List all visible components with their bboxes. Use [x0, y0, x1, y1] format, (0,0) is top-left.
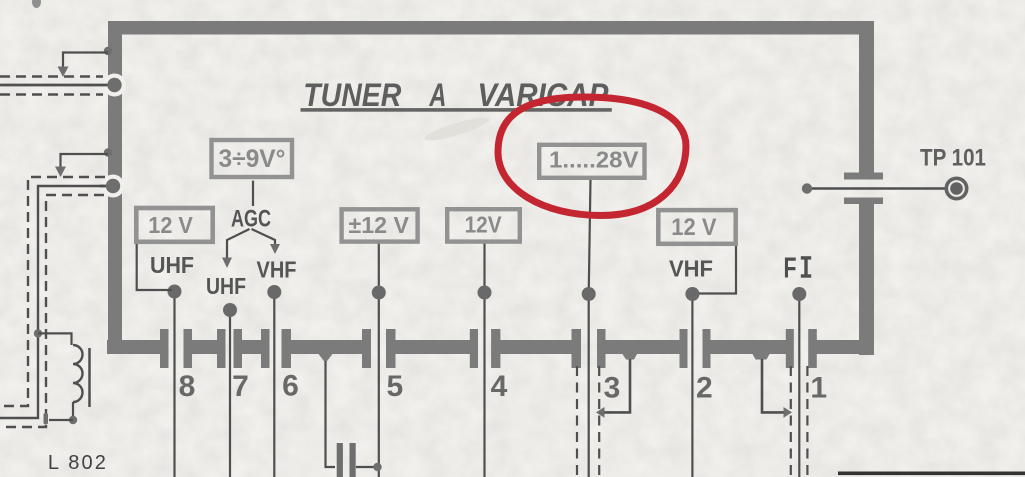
svg-text:A: A: [429, 77, 447, 113]
svg-text:12V: 12V: [465, 212, 503, 238]
svg-text:12 V: 12 V: [671, 214, 716, 241]
svg-text:VHF: VHF: [257, 257, 297, 283]
svg-text:6: 6: [282, 370, 299, 403]
svg-text:TUNER: TUNER: [303, 77, 401, 113]
svg-text:5: 5: [386, 370, 403, 403]
svg-text:3: 3: [604, 372, 621, 405]
svg-text:UHF: UHF: [206, 273, 246, 299]
svg-text:±12 V: ±12 V: [349, 212, 410, 238]
svg-text:L 802: L 802: [48, 452, 106, 474]
svg-text:7: 7: [232, 370, 249, 403]
svg-text:12 V: 12 V: [148, 212, 193, 238]
svg-text:3÷9V°: 3÷9V°: [219, 145, 286, 173]
svg-text:TP 101: TP 101: [920, 145, 986, 172]
svg-text:AGC: AGC: [231, 206, 271, 233]
svg-text:8: 8: [179, 370, 196, 403]
svg-text:2: 2: [696, 372, 713, 405]
svg-text:4: 4: [491, 370, 508, 403]
svg-text:UHF: UHF: [150, 252, 194, 278]
svg-text:VHF: VHF: [669, 256, 713, 282]
svg-text:F: F: [784, 253, 797, 285]
svg-text:1.....28V: 1.....28V: [549, 147, 639, 173]
svg-text:1: 1: [810, 372, 827, 405]
